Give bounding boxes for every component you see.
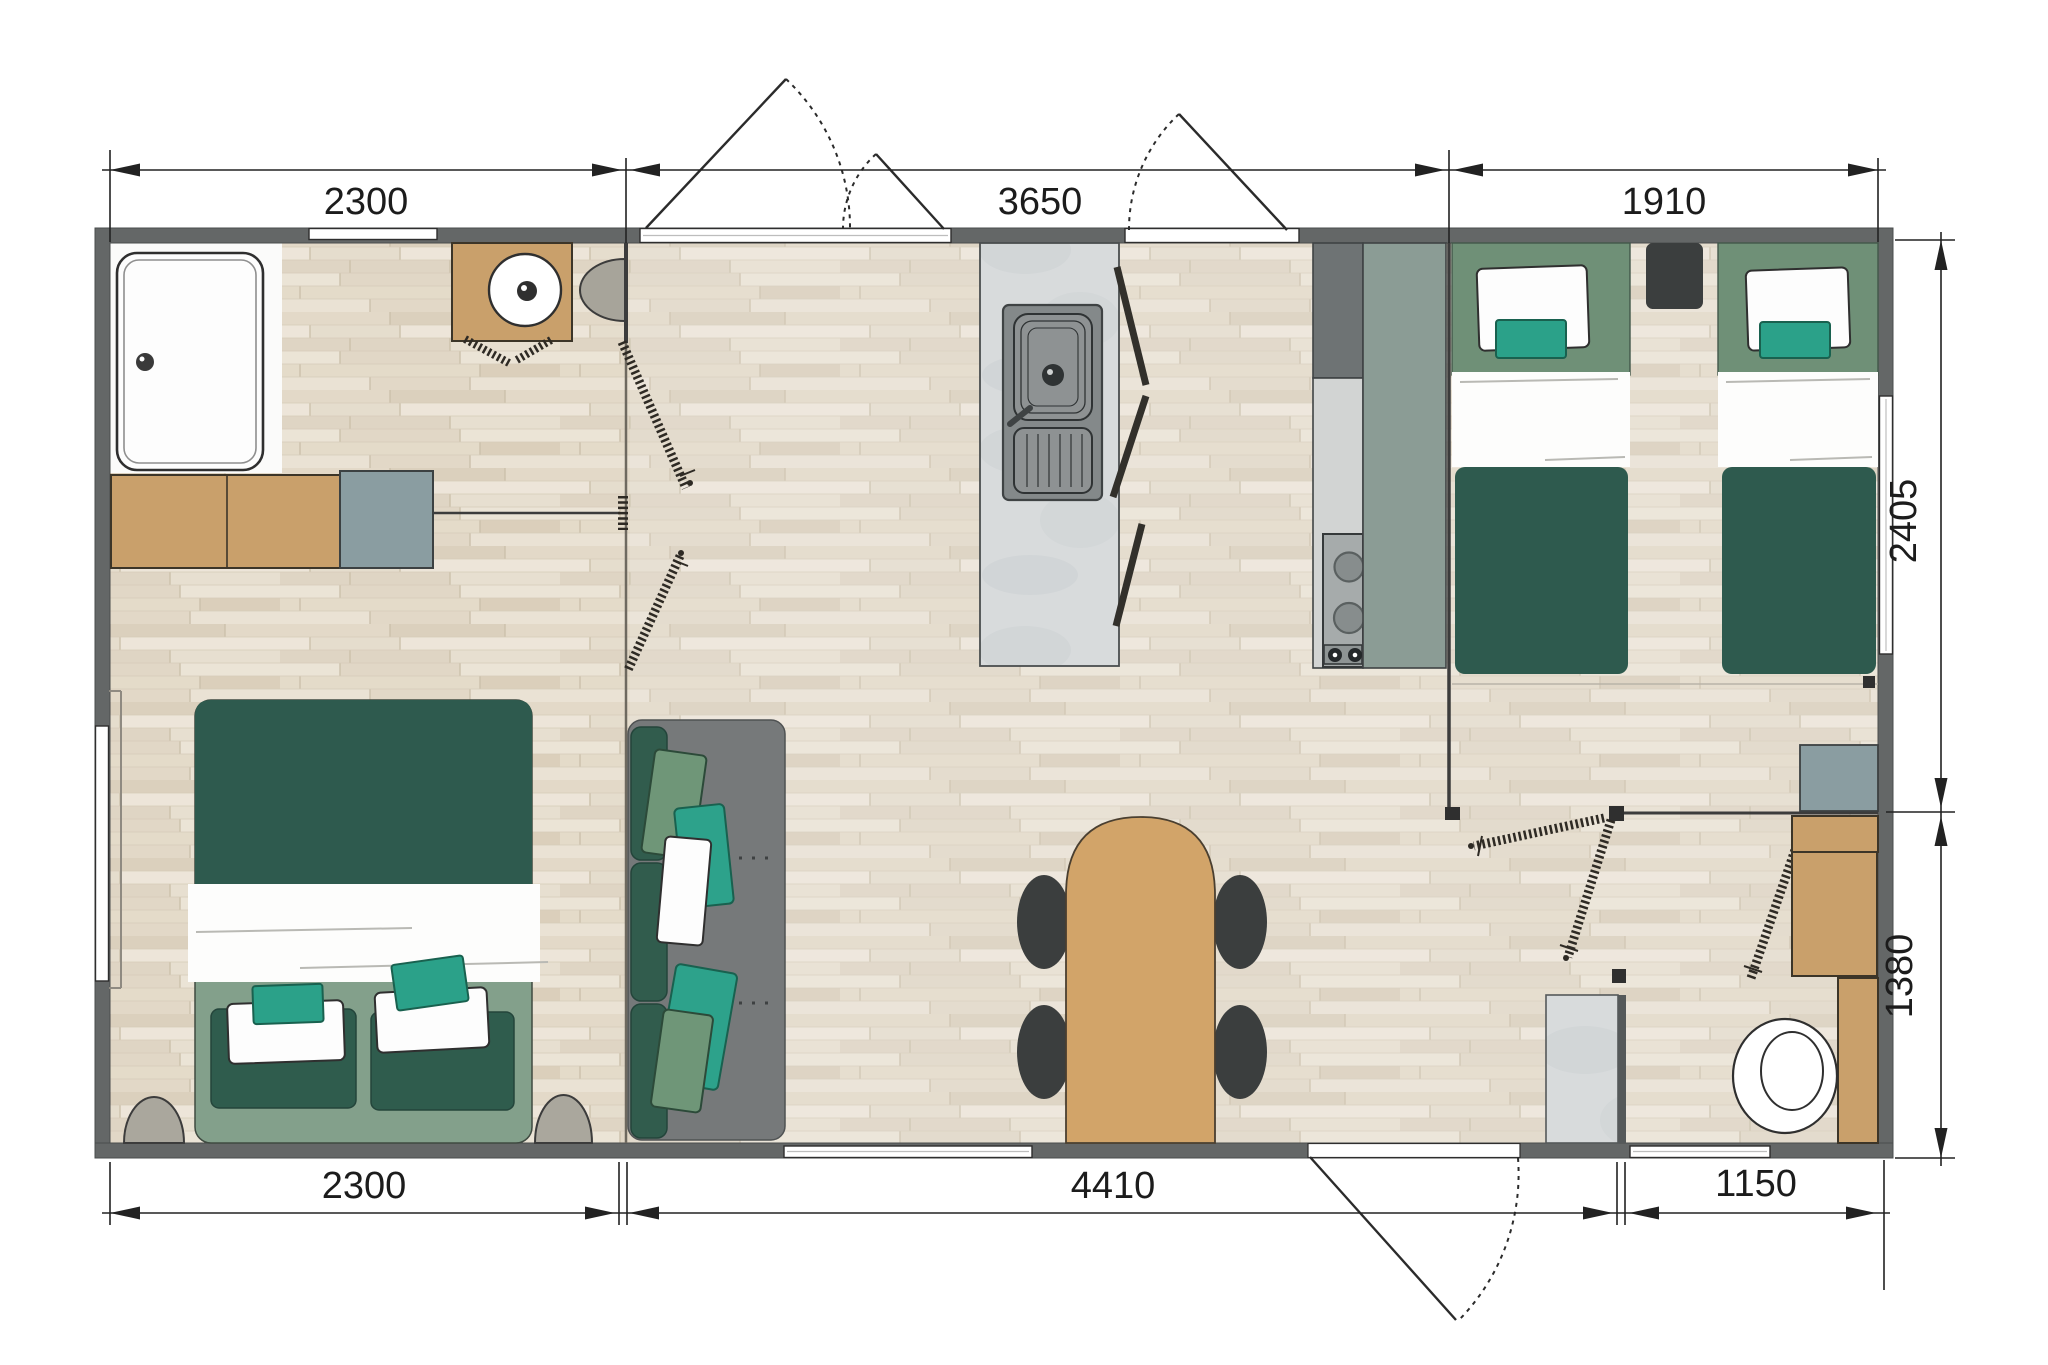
svg-text:2300: 2300: [324, 181, 409, 223]
svg-text:4410: 4410: [1071, 1165, 1156, 1207]
svg-text:1910: 1910: [1622, 181, 1707, 223]
svg-text:1380: 1380: [1879, 934, 1921, 1019]
svg-text:2405: 2405: [1883, 479, 1925, 564]
svg-text:3650: 3650: [998, 181, 1083, 223]
svg-text:1150: 1150: [1715, 1163, 1797, 1205]
svg-text:2300: 2300: [322, 1165, 407, 1207]
